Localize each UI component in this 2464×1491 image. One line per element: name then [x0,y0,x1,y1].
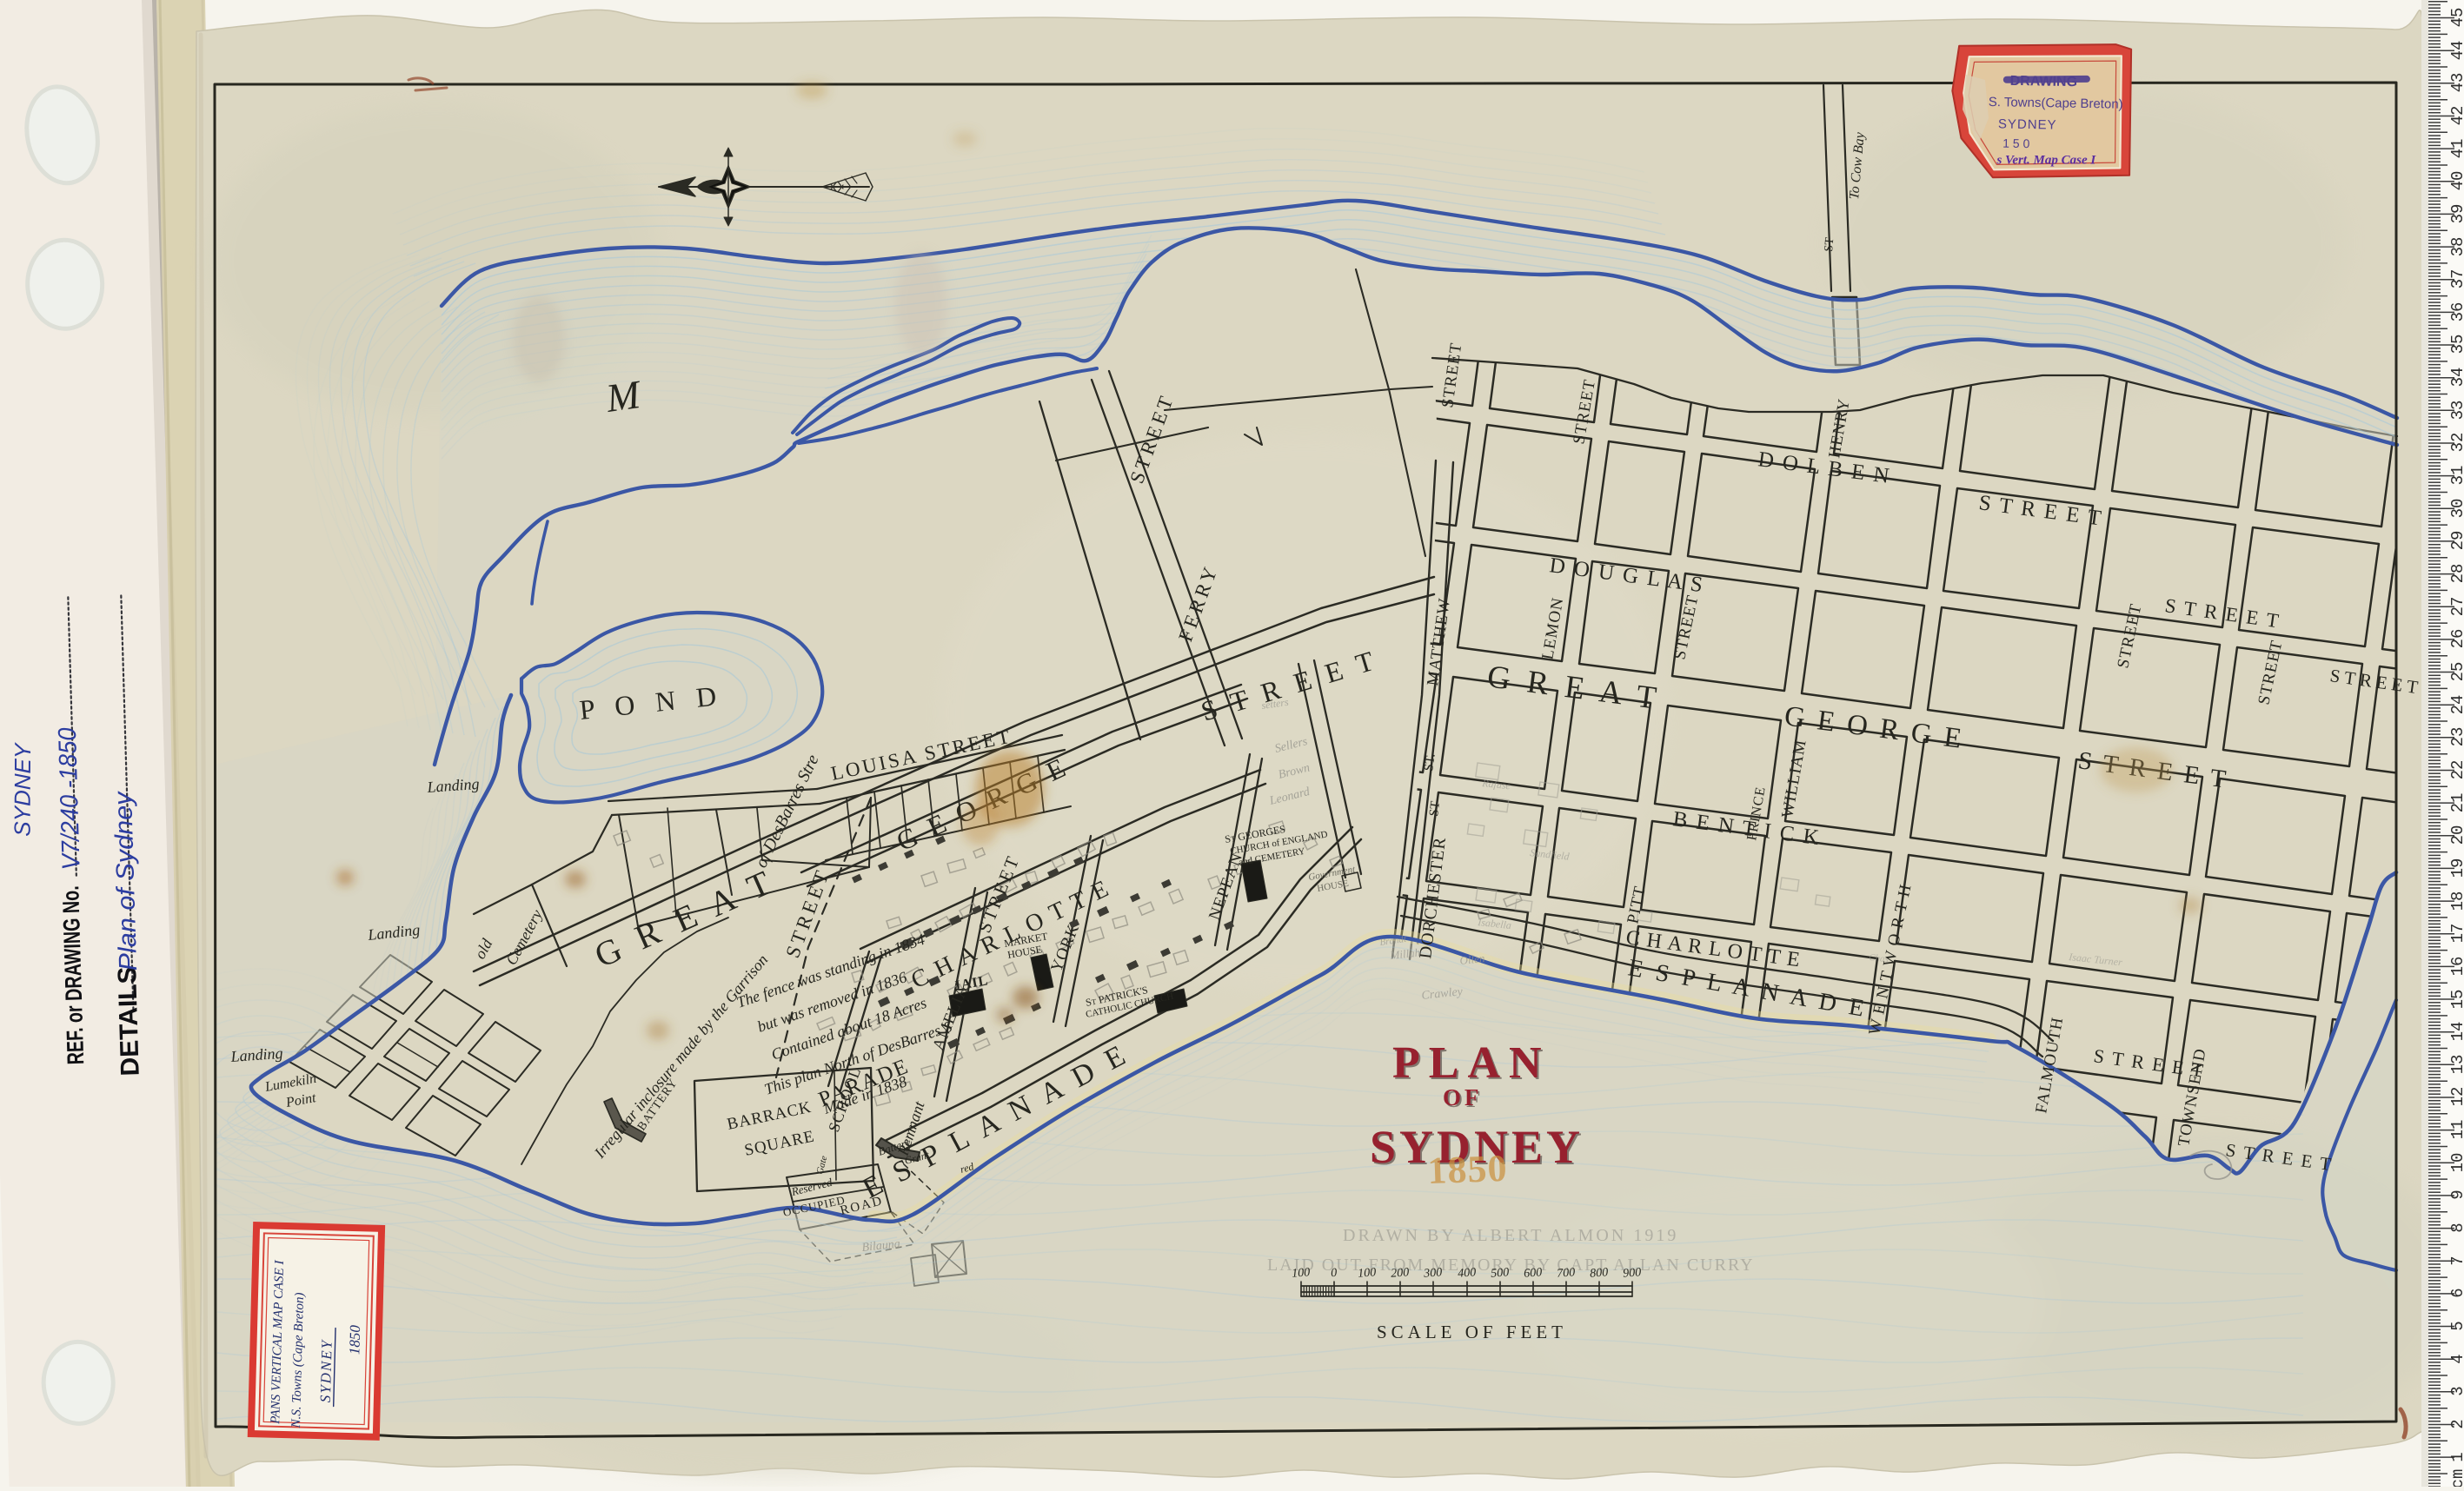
svg-text:15: 15 [2448,990,2464,1010]
svg-text:40: 40 [2448,171,2464,191]
svg-text:SYDNEY: SYDNEY [9,742,36,837]
svg-text:28: 28 [2448,564,2464,584]
svg-text:17: 17 [2448,924,2464,944]
svg-text:9: 9 [2448,1189,2464,1199]
svg-text:700: 700 [1557,1266,1576,1280]
svg-text:18: 18 [2448,891,2464,911]
svg-text:11: 11 [2448,1120,2464,1140]
svg-text:DETAILS: DETAILS [113,966,145,1077]
svg-text:OF: OF [1443,1084,1483,1110]
svg-text:500: 500 [1491,1266,1510,1280]
svg-text:200: 200 [1391,1266,1410,1280]
svg-text:2: 2 [2448,1419,2464,1428]
svg-text:36: 36 [2448,302,2464,322]
svg-text:Ollen: Ollen [1459,951,1485,967]
svg-text:22: 22 [2448,760,2464,780]
svg-text:SYDNEY: SYDNEY [317,1339,335,1403]
svg-text:25: 25 [2448,662,2464,682]
svg-text:3: 3 [2448,1386,2464,1395]
svg-text:PLAN: PLAN [1392,1038,1551,1088]
svg-text:30: 30 [2448,499,2464,519]
svg-text:800: 800 [1590,1266,1609,1280]
svg-text:cm: cm [2448,1469,2464,1487]
svg-text:600: 600 [1524,1266,1543,1280]
svg-text:44: 44 [2448,41,2464,61]
svg-text:1850: 1850 [346,1324,363,1355]
svg-text:Landing: Landing [426,775,480,796]
svg-text:ST: ST [1427,800,1443,817]
svg-text:100: 100 [1292,1266,1311,1280]
svg-text:1 5 0: 1 5 0 [2002,136,2030,151]
svg-text:REF. or DRAWING No.: REF. or DRAWING No. [57,885,89,1065]
svg-text:33: 33 [2448,401,2464,421]
svg-text:34: 34 [2448,368,2464,388]
svg-text:20: 20 [2448,825,2464,845]
svg-text:8: 8 [2448,1223,2464,1232]
svg-text:5: 5 [2448,1321,2464,1330]
svg-text:300: 300 [1423,1266,1443,1280]
svg-text:100: 100 [1358,1266,1377,1280]
svg-text:Landing: Landing [229,1044,283,1065]
svg-text:23: 23 [2448,727,2464,747]
svg-text:45: 45 [2448,8,2464,28]
svg-text:Plan of Sydney: Plan of Sydney [110,790,143,971]
svg-text:24: 24 [2448,695,2464,715]
svg-text:V7/240 -1850: V7/240 -1850 [54,727,86,871]
svg-text:SYDNEY: SYDNEY [1998,116,2057,132]
svg-text:42: 42 [2448,106,2464,126]
svg-text:27: 27 [2448,597,2464,617]
svg-text:12: 12 [2448,1087,2464,1107]
svg-text:16: 16 [2448,957,2464,977]
svg-text:10: 10 [2448,1153,2464,1173]
svg-text:7: 7 [2448,1256,2464,1265]
svg-text:6: 6 [2448,1288,2464,1297]
svg-text:32: 32 [2448,433,2464,453]
svg-text:900: 900 [1623,1266,1642,1280]
svg-text:35: 35 [2448,335,2464,355]
svg-text:s Vert. Map Case I: s Vert. Map Case I [1996,153,2096,167]
svg-text:ST: ST [1823,236,1836,252]
svg-text:ST.: ST. [1422,752,1438,772]
svg-text:29: 29 [2448,531,2464,551]
svg-text:0: 0 [1331,1267,1338,1280]
svg-text:DRAWN BY ALBERT ALMON 1919: DRAWN BY ALBERT ALMON 1919 [1343,1226,1678,1245]
svg-text:26: 26 [2448,629,2464,649]
svg-text:43: 43 [2448,73,2464,93]
svg-text:41: 41 [2448,139,2464,159]
svg-text:37: 37 [2448,269,2464,289]
svg-text:1: 1 [2448,1452,2464,1461]
svg-text:SCALE OF FEET: SCALE OF FEET [1377,1322,1567,1342]
svg-text:38: 38 [2448,237,2464,257]
svg-text:19: 19 [2448,858,2464,878]
svg-text:39: 39 [2448,204,2464,224]
svg-text:31: 31 [2448,466,2464,486]
svg-text:S. Towns(Cape Breton): S. Towns(Cape Breton) [1989,95,2123,112]
svg-text:400: 400 [1458,1266,1477,1280]
svg-text:1850: 1850 [1427,1147,1509,1192]
svg-text:14: 14 [2448,1022,2464,1042]
svg-text:13: 13 [2448,1055,2464,1075]
svg-text:4: 4 [2448,1354,2464,1363]
svg-text:21: 21 [2448,793,2464,813]
svg-text:LAID OUT FROM MEMORY BY C: LAID OUT FROM MEMORY BY CAPT ALLAN CURRY [1267,1256,1755,1275]
